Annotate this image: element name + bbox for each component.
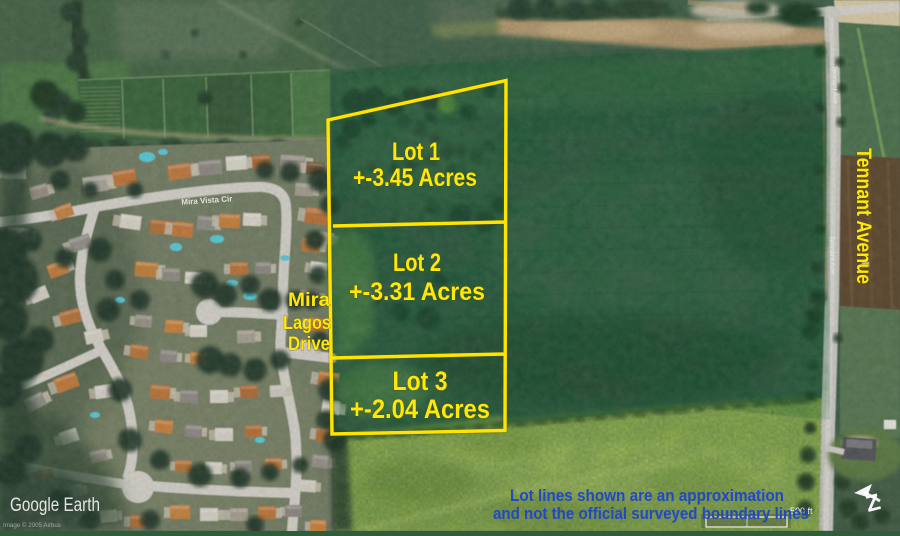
svg-text:Tennant Ave: Tennant Ave — [830, 66, 838, 105]
svg-text:Lot 3: Lot 3 — [393, 366, 448, 396]
svg-text:Drive: Drive — [288, 334, 330, 355]
svg-text:Mira: Mira — [288, 290, 330, 311]
svg-text:Google Earth: Google Earth — [10, 495, 100, 516]
svg-text:+-3.31 Acres: +-3.31 Acres — [349, 278, 485, 306]
svg-text:Lot lines shown are an approxi: Lot lines shown are an approximation — [510, 487, 784, 505]
svg-text:+-3.45 Acres: +-3.45 Acres — [353, 164, 477, 192]
svg-text:Tennant Ave: Tennant Ave — [827, 236, 835, 275]
svg-text:and not the official surveyed: and not the official surveyed boundary l… — [493, 505, 809, 523]
svg-text:Lot 1: Lot 1 — [392, 138, 440, 166]
svg-text:Lot 2: Lot 2 — [393, 249, 441, 277]
svg-text:Image © 2005 Airbus: Image © 2005 Airbus — [3, 522, 61, 529]
svg-text:+-2.04 Acres: +-2.04 Acres — [350, 394, 490, 424]
svg-text:Tennant Avenue: Tennant Avenue — [852, 148, 875, 284]
svg-text:Lagos: Lagos — [283, 313, 331, 334]
